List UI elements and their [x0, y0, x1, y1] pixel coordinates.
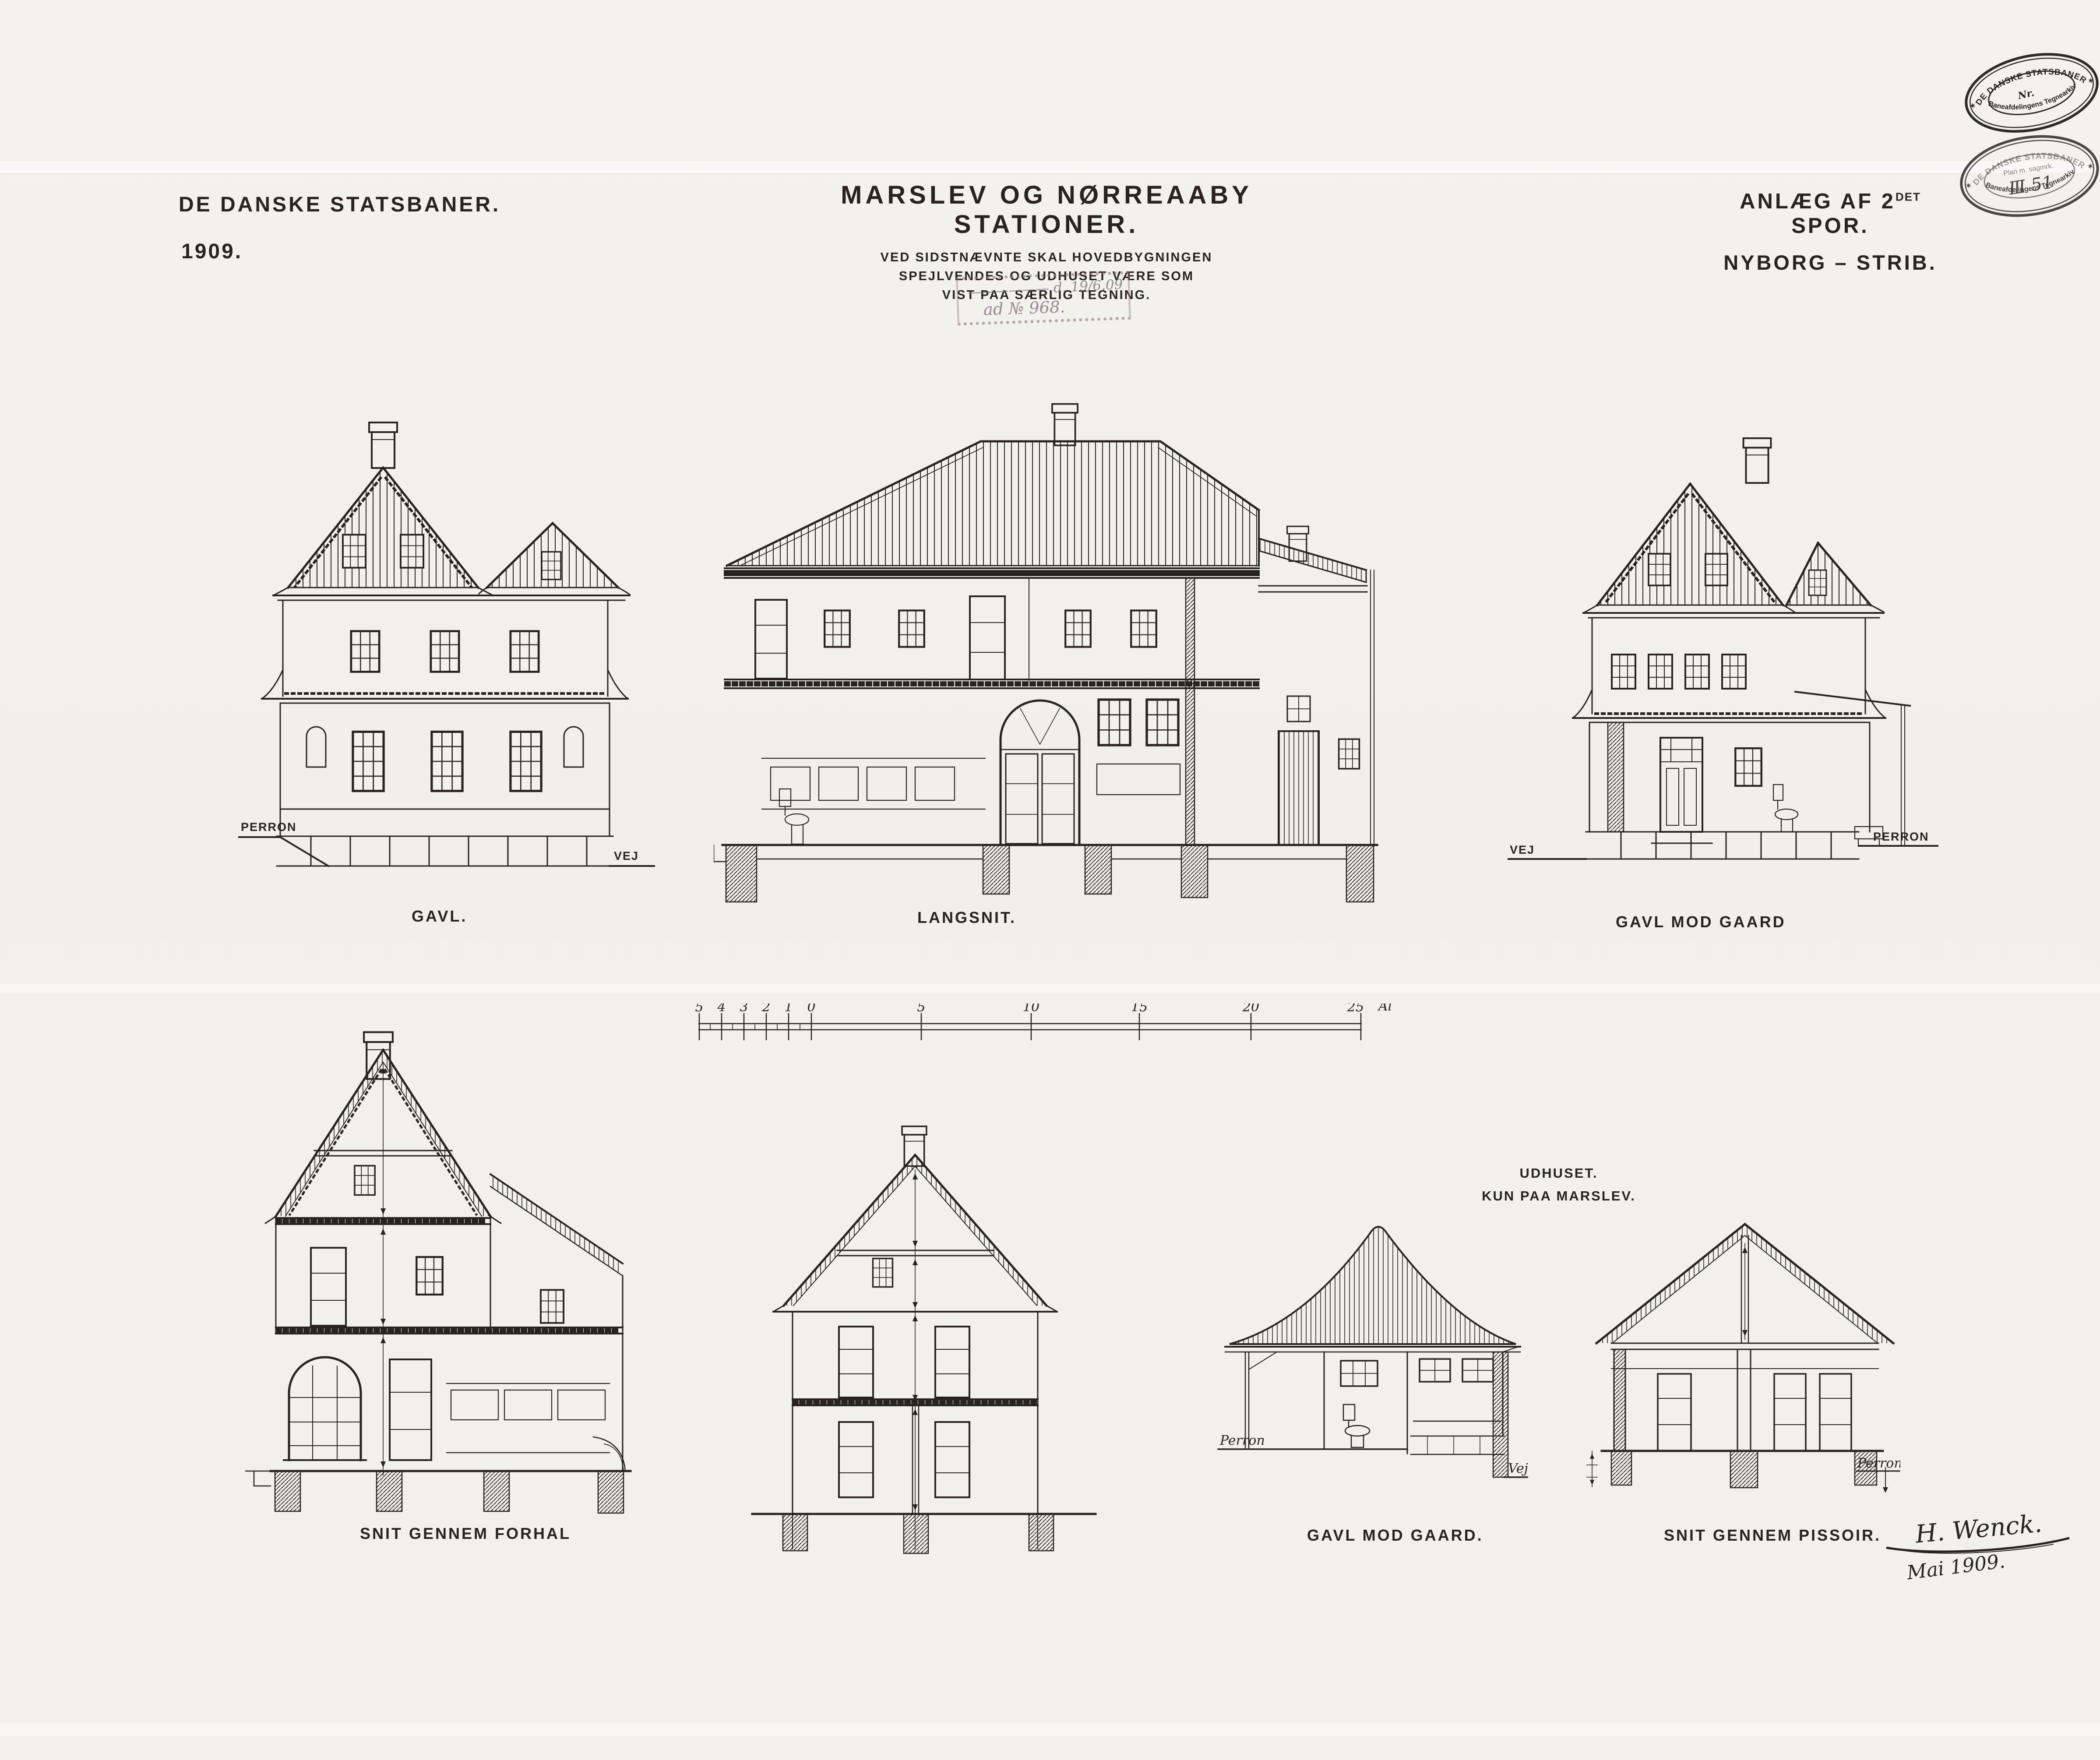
ground-window — [511, 732, 541, 791]
foundation-footings — [714, 845, 1374, 902]
scan-band — [0, 984, 2100, 994]
dimension-line — [377, 1064, 390, 1475]
udhus-heading-line-2: KUN PAA MARSLEV. — [1458, 1188, 1660, 1204]
journal-stamp-number: ad № 968. — [983, 296, 1123, 319]
stamp-star-right-icon: ✶ — [2086, 76, 2096, 87]
scan-band — [0, 1723, 2100, 1736]
entrance-arch — [1001, 700, 1079, 845]
attic-window — [401, 535, 423, 567]
attic-window — [355, 1166, 375, 1195]
attic-window — [542, 552, 561, 579]
wc-fixture — [1773, 785, 1798, 832]
platform-line — [239, 837, 328, 866]
attic-window — [1649, 554, 1670, 585]
secondary-gable — [1786, 543, 1884, 612]
scale-tick-label: 4 — [717, 1003, 726, 1015]
upper-window — [1612, 655, 1635, 689]
first-floor-line — [793, 1399, 1038, 1405]
project-title: ANLÆG AF 2DET SPOR. — [1699, 189, 1962, 238]
project-route: NYBORG – STRIB. — [1699, 250, 1962, 275]
glazed-partition — [1097, 700, 1180, 795]
project-title-superscript: DET — [1896, 190, 1921, 204]
header-right: ANLÆG AF 2DET SPOR. NYBORG – STRIB. — [1699, 189, 1962, 275]
scan-band — [0, 161, 2100, 172]
ground-window — [353, 732, 384, 791]
second-floor-doors — [839, 1327, 969, 1397]
chimney — [1052, 404, 1078, 446]
ground-window — [1735, 748, 1761, 786]
first-floor-line — [725, 679, 1259, 688]
attic-window — [1809, 570, 1826, 595]
main-gable — [273, 468, 493, 595]
scale-tick-label: 3 — [740, 1003, 748, 1015]
attic-window — [1705, 554, 1727, 585]
ground-label-vej: Vej — [1508, 1461, 1528, 1476]
company-title: DE DANSKE STATSBANER. — [179, 193, 500, 217]
figure-udhus-snit: Perron — [1576, 1208, 1900, 1506]
journal-stamp: —————— d. 19/6.09 ad № 968. — [956, 271, 1131, 326]
figure-langsnit — [714, 394, 1401, 933]
ground-label-vej: VEJ — [614, 849, 639, 862]
drawing-sheet: DE DANSKE STATSBANER. 1909. MARSLEV OG N… — [0, 0, 2100, 1760]
dimension-line — [909, 1170, 922, 1550]
caption-gavl-mod-gaard: GAVL MOD GAARD — [1616, 913, 1786, 931]
section-cut-pier — [1186, 578, 1194, 845]
caption-snit-gennem-forhal: SNIT GENNEM FORHAL — [360, 1524, 571, 1543]
stamp-star-right-icon: ✶ — [2086, 162, 2095, 172]
scale-unit-label: Alen — [1377, 1003, 1392, 1014]
figure-snit-gennem-forhal — [245, 1020, 639, 1515]
signature-block: H. Wenck. Mai 1909. — [1878, 1495, 2084, 1587]
header-left: DE DANSKE STATSBANER. 1909. — [179, 193, 500, 264]
stamp-archive-number: Ⅲ 51 — [2007, 172, 2054, 199]
porch-post — [1371, 570, 1374, 845]
scale-tick-label: 0 — [807, 1003, 815, 1015]
upper-window — [1685, 655, 1709, 689]
second-floor-openings — [755, 578, 1156, 681]
figure-cross-section — [727, 1121, 1121, 1563]
wall-cut — [1614, 1349, 1625, 1451]
stamp-nr-label: Nr. — [2016, 87, 2035, 102]
main-title: MARSLEV OG NØRREAABY STATIONER. — [788, 180, 1305, 239]
first-floor-line — [276, 1327, 623, 1334]
annex-openings — [1279, 696, 1359, 845]
ground-label-vej: VEJ — [1510, 843, 1535, 856]
chimney — [369, 422, 397, 468]
caption-langsnit: LANGSNIT. — [917, 908, 1016, 927]
hipped-roof — [1225, 1227, 1520, 1352]
foundation-footings — [245, 1471, 624, 1513]
wainscot-panels — [762, 758, 985, 809]
architect-signature: H. Wenck. — [1914, 1510, 2043, 1549]
plinth-course — [1411, 1421, 1504, 1454]
hall-door — [390, 1359, 431, 1460]
doors — [1658, 1374, 1851, 1451]
upper-window — [1649, 655, 1672, 689]
caption-udhus-gavl: GAVL MOD GAARD. — [1307, 1526, 1483, 1545]
scale-tick-label: 1 — [784, 1003, 793, 1015]
section-cut-pier — [1493, 1352, 1508, 1477]
partition-wall — [1737, 1349, 1751, 1451]
svg-text:DE DANSKE STATSBANER: DE DANSKE STATSBANER — [1970, 58, 2089, 108]
upper-window — [431, 631, 459, 672]
scale-tick-label: 5 — [695, 1003, 703, 1015]
foundation-footings — [783, 1514, 1054, 1553]
caption-udhus-snit: SNIT GENNEM PISSOIR. — [1664, 1526, 1881, 1545]
left-dimension — [1587, 1451, 1597, 1487]
scale-tick-label: 5 — [917, 1003, 925, 1015]
caption-gavl: GAVL. — [412, 907, 467, 926]
ground-label-perron: Perron — [1857, 1456, 1900, 1471]
attic-window — [873, 1259, 893, 1287]
figure-udhus-gavl: Perron Vej — [1217, 1208, 1528, 1489]
ground-window — [432, 732, 462, 791]
figure-gavl-mod-gaard: VEJ PERRON — [1506, 412, 1940, 893]
drawing-year: 1909. — [181, 239, 500, 264]
chimney — [1744, 438, 1771, 483]
wc-fixture — [779, 789, 809, 844]
scale-tick-label: 20 — [1242, 1003, 1259, 1015]
ground-label-perron: Perron — [1219, 1433, 1265, 1448]
scale-tick-label: 25 — [1347, 1003, 1364, 1015]
main-gable — [1583, 484, 1794, 613]
figure-gavl: PERRON VEJ — [236, 390, 657, 898]
scale-tick-label: 15 — [1131, 1003, 1148, 1015]
upper-window — [1722, 655, 1746, 689]
stamp-arc-top-text: DE DANSKE STATSBANER — [1970, 58, 2089, 108]
wainscot-panels — [447, 1383, 610, 1453]
scale-tick-label: 2 — [761, 1003, 770, 1015]
scale-bar: 5 4 3 2 1 0 5 10 15 20 25 Alen — [692, 1003, 1392, 1043]
foundation-footings — [1611, 1451, 1877, 1488]
scale-tick-label: 10 — [1023, 1003, 1039, 1015]
partition-wall — [913, 1405, 919, 1514]
stamp-star-left-icon: ✶ — [1964, 181, 1973, 191]
plinth-course — [1586, 832, 1859, 859]
udhus-heading-line-1: UDHUSET. — [1458, 1165, 1660, 1181]
ground-floor-doors — [839, 1422, 969, 1497]
dimension-line — [1742, 1243, 1748, 1340]
subtitle-line-1: VED SIDSTNÆVNTE SKAL HOVEDBYGNINGEN — [788, 250, 1305, 265]
wc-fixture — [1343, 1404, 1370, 1447]
exterior-stair — [593, 1437, 625, 1471]
arched-window — [284, 1357, 366, 1460]
second-floor-openings — [311, 1248, 564, 1326]
wing-roof — [490, 1174, 623, 1276]
section-cut-pier — [1608, 722, 1624, 832]
entrance-door — [1652, 738, 1712, 843]
udhus-heading: UDHUSET. KUN PAA MARSLEV. — [1458, 1165, 1660, 1204]
ground-label-perron: PERRON — [1873, 830, 1929, 843]
signature-date: Mai 1909. — [1905, 1550, 2006, 1584]
upper-window — [351, 631, 379, 672]
attic-window — [343, 535, 366, 567]
upper-window — [511, 631, 539, 672]
ground-label-perron: PERRON — [241, 820, 297, 834]
windows — [1341, 1359, 1493, 1386]
roof-section — [727, 441, 1366, 582]
attic-floor — [725, 568, 1367, 592]
plinth-course — [277, 836, 613, 866]
tie-beam — [1611, 1343, 1878, 1349]
